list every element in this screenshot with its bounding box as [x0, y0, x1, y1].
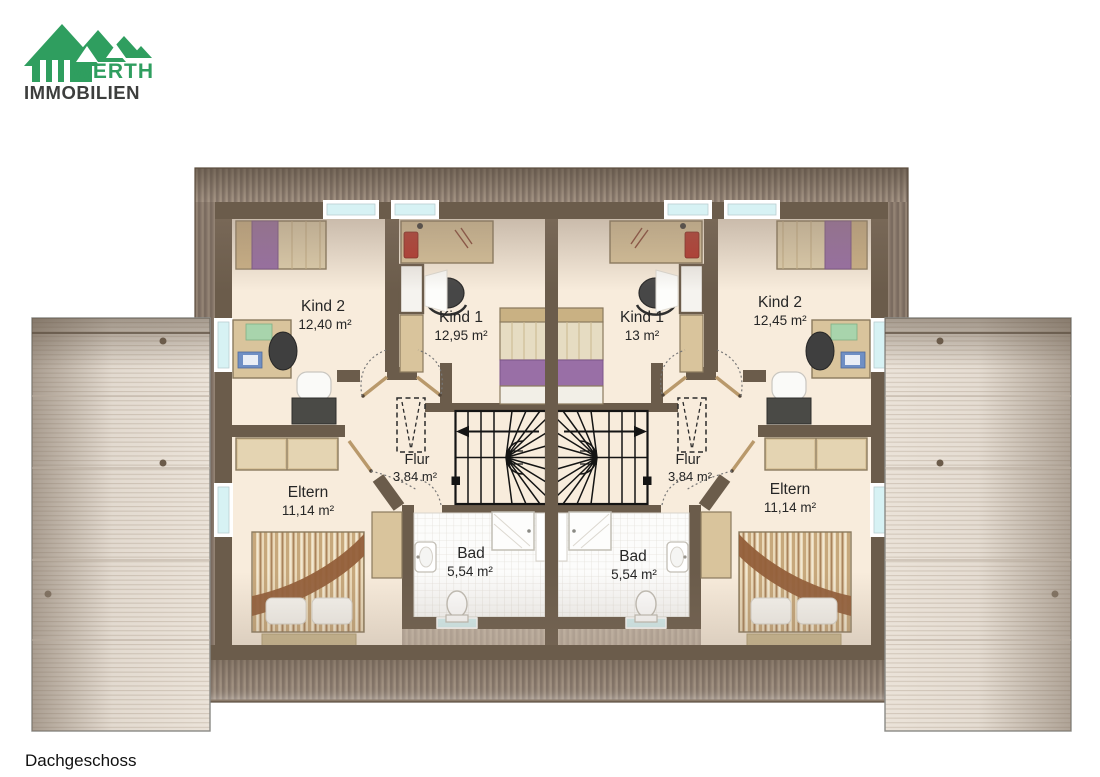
label-right-kind1-area: 13 m² [625, 328, 660, 343]
label-right-flur-area: 3,84 m² [668, 469, 713, 484]
roof-panel-left [32, 318, 210, 731]
roof-top-band [195, 168, 908, 202]
label-right-kind2-name: Kind 2 [758, 294, 802, 311]
ceiling-slope-shade-top [215, 219, 888, 291]
brand-name: WERTH [72, 60, 154, 83]
roof-bottom-band [195, 645, 908, 702]
label-left-kind1-area: 12,95 m² [434, 328, 488, 343]
label-left-kind1-name: Kind 1 [439, 309, 483, 326]
brand-subtitle: IMMOBILIEN [24, 82, 140, 103]
label-right-eltern-name: Eltern [770, 481, 811, 498]
label-right-kind1-name: Kind 1 [620, 309, 664, 326]
label-left-bad-area: 5,54 m² [447, 564, 493, 579]
label-left-eltern-area: 11,14 m² [282, 503, 335, 518]
label-left-flur-area: 3,84 m² [393, 469, 438, 484]
floor-plan-page: Kind 2 12,40 m² Kind 1 12,95 m² Kind 1 1… [0, 0, 1100, 777]
label-left-eltern-name: Eltern [288, 484, 329, 501]
label-left-kind2-area: 12,40 m² [298, 317, 352, 332]
label-left-flur-name: Flur [405, 452, 430, 468]
label-right-kind2-area: 12,45 m² [753, 313, 807, 328]
label-left-bad-name: Bad [457, 545, 485, 562]
label-right-bad-area: 5,54 m² [611, 567, 657, 582]
label-right-bad-name: Bad [619, 548, 647, 565]
label-right-eltern-area: 11,14 m² [764, 500, 817, 515]
floor-plan-canvas: Kind 2 12,40 m² Kind 1 12,95 m² Kind 1 1… [0, 0, 1100, 777]
floor-label: Dachgeschoss [25, 751, 137, 770]
ceiling-slope-shade-bottom [232, 572, 871, 645]
label-right-flur-name: Flur [676, 452, 701, 468]
label-left-kind2-name: Kind 2 [301, 298, 345, 315]
roof-panel-right [885, 318, 1071, 731]
